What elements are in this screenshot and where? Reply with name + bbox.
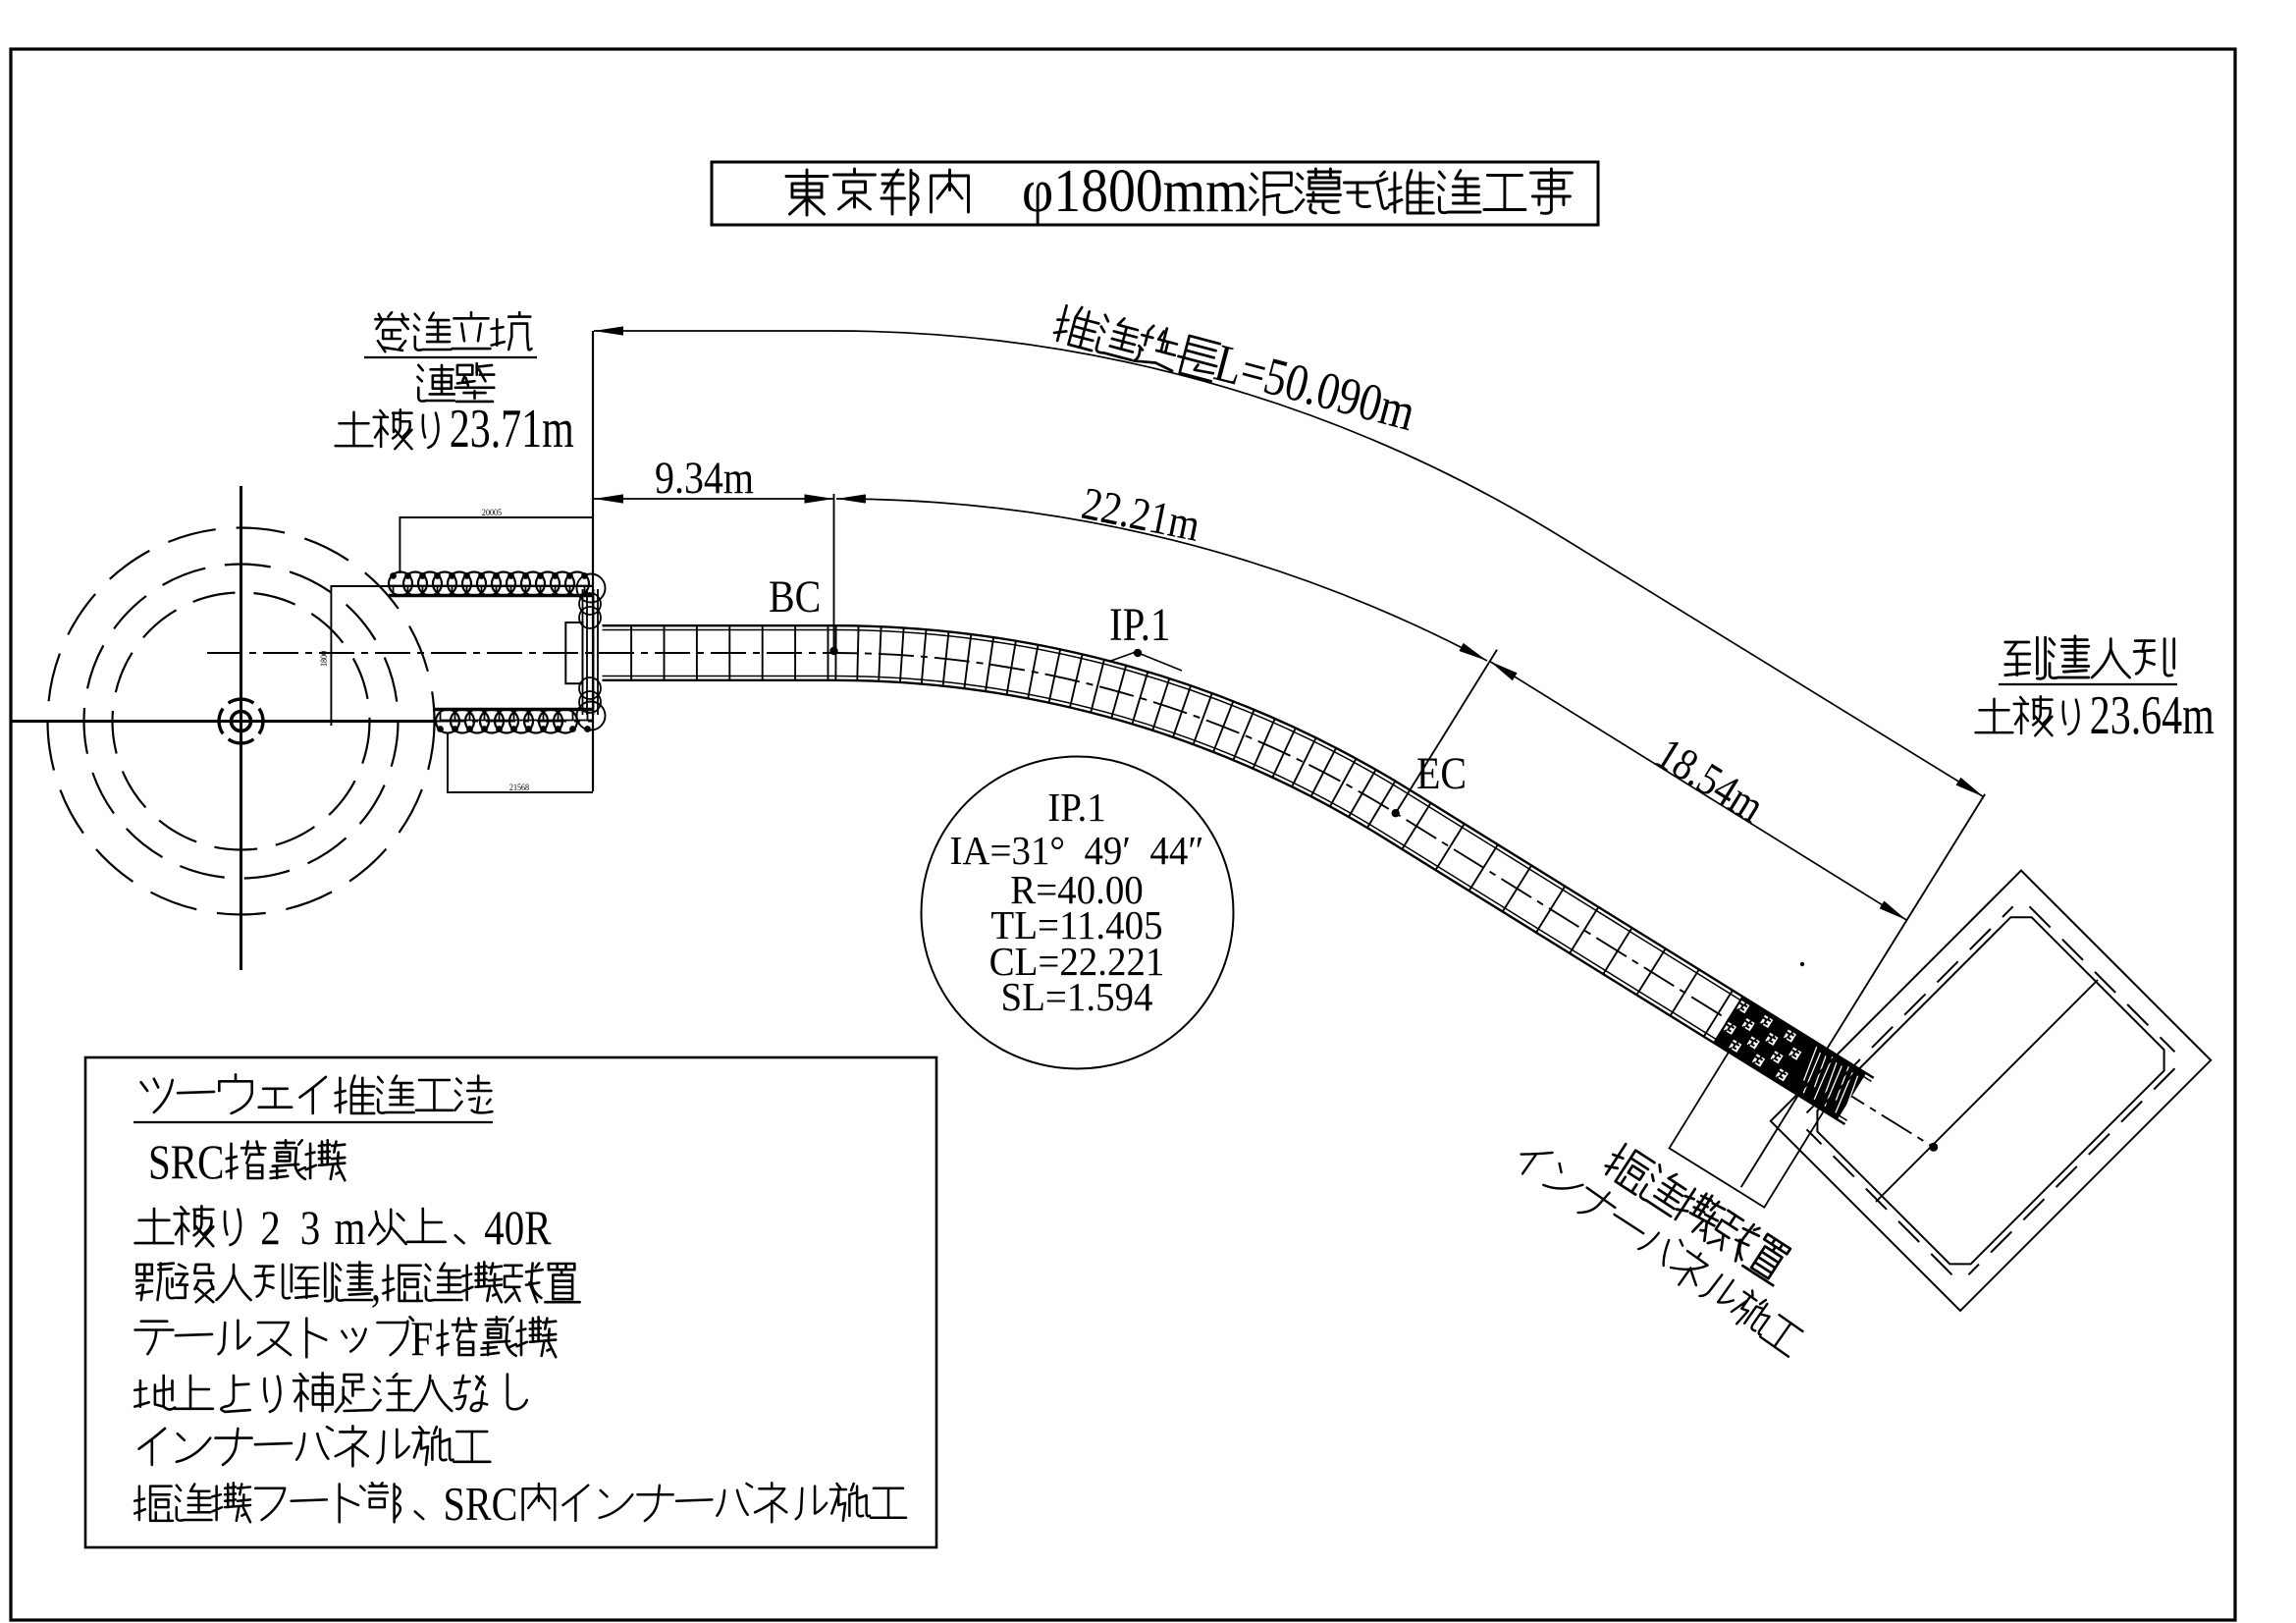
svg-text:40R: 40R — [484, 1200, 552, 1255]
svg-text:9.34m: 9.34m — [655, 453, 754, 504]
svg-text:3: 3 — [300, 1200, 320, 1255]
svg-text:,: , — [371, 1256, 381, 1311]
svg-text:SL=1.594: SL=1.594 — [1001, 974, 1153, 1019]
svg-text:SRC: SRC — [148, 1134, 224, 1189]
svg-text:2: 2 — [260, 1200, 280, 1255]
svg-text:F: F — [410, 1311, 433, 1366]
svg-text:SRC: SRC — [444, 1477, 518, 1531]
svg-text:IP.1: IP.1 — [1047, 784, 1106, 830]
svg-text:φ1800mm: φ1800mm — [1022, 156, 1249, 224]
svg-text:23.64m: 23.64m — [2090, 684, 2215, 745]
svg-text:23.71m: 23.71m — [450, 398, 574, 459]
svg-text:m: m — [335, 1200, 366, 1255]
svg-text:21568: 21568 — [509, 782, 530, 792]
svg-text:IP.1: IP.1 — [1109, 598, 1170, 651]
svg-text:EC: EC — [1416, 748, 1467, 799]
svg-text:BC: BC — [769, 571, 821, 622]
svg-text:20005: 20005 — [482, 507, 503, 517]
